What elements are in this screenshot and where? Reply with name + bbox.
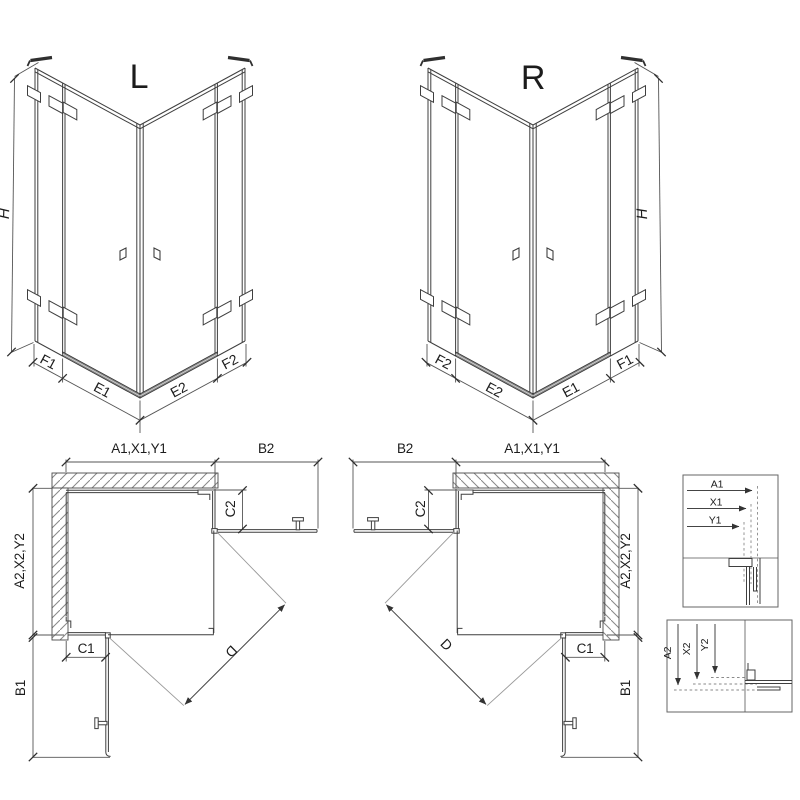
iso-right-f1-label: F1 xyxy=(614,351,636,373)
iso-view-left: L H F1 E1 E2 F2 xyxy=(0,58,253,434)
plan-left-b2-label: B2 xyxy=(258,441,274,456)
iso-left-h-label: H xyxy=(0,208,13,220)
plan-left-linework xyxy=(29,458,322,761)
iso-view-right: R H F2 E2 E1 F1 xyxy=(421,58,666,434)
plan-left-d-label: D xyxy=(222,642,240,660)
detail-x1-label: X1 xyxy=(710,497,723,509)
iso-left-f1-label: F1 xyxy=(38,351,60,373)
plan-left-c2-label: C2 xyxy=(223,501,238,518)
plan-left-b1-label: B1 xyxy=(13,680,28,696)
plan-right-d-label: D xyxy=(437,635,455,653)
plan-left-depth-label: A2,X2,Y2 xyxy=(12,533,27,588)
plan-right-b1-label: B1 xyxy=(618,680,633,696)
detail-a1-label: A1 xyxy=(711,479,724,491)
iso-right-h-label: H xyxy=(634,208,651,220)
detail-y1-label: Y1 xyxy=(709,515,722,527)
plan-right-c1-label: C1 xyxy=(577,641,594,656)
iso-left-linework xyxy=(7,58,252,434)
detail-box-width-measurements: A1 X1 Y1 xyxy=(683,475,778,607)
plan-right-c2-label: C2 xyxy=(413,501,428,518)
detail-x2-label: X2 xyxy=(681,642,693,655)
plan-view-right: B2 A1,X1,Y1 C2 A2,X2,Y2 C1 B1 D xyxy=(349,441,642,761)
iso-left-title: L xyxy=(130,58,149,96)
detail-top-profile xyxy=(729,558,760,605)
iso-right-linework xyxy=(421,58,666,434)
plan-right-linework xyxy=(349,458,642,761)
detail-a2-label: A2 xyxy=(662,646,674,659)
plan-right-b2-label: B2 xyxy=(397,441,413,456)
drawing-svg: L H F1 E1 E2 F2 R H F2 E2 E1 F1 A1,X1,Y1… xyxy=(0,0,800,800)
plan-left-width-label: A1,X1,Y1 xyxy=(111,441,166,456)
iso-right-title: R xyxy=(521,59,545,97)
detail-y2-label: Y2 xyxy=(699,638,711,651)
plan-right-depth-label: A2,X2,Y2 xyxy=(618,533,633,588)
plan-left-c1-label: C1 xyxy=(78,641,95,656)
detail-box-depth-measurements: A2 X2 Y2 xyxy=(662,620,792,712)
shower-enclosure-technical-drawing: L H F1 E1 E2 F2 R H F2 E2 E1 F1 A1,X1,Y1… xyxy=(0,0,800,800)
detail-bottom-profile xyxy=(745,663,792,690)
plan-right-width-label: A1,X1,Y1 xyxy=(504,441,559,456)
plan-view-left: A1,X1,Y1 B2 C2 A2,X2,Y2 C1 B1 D xyxy=(12,441,322,761)
